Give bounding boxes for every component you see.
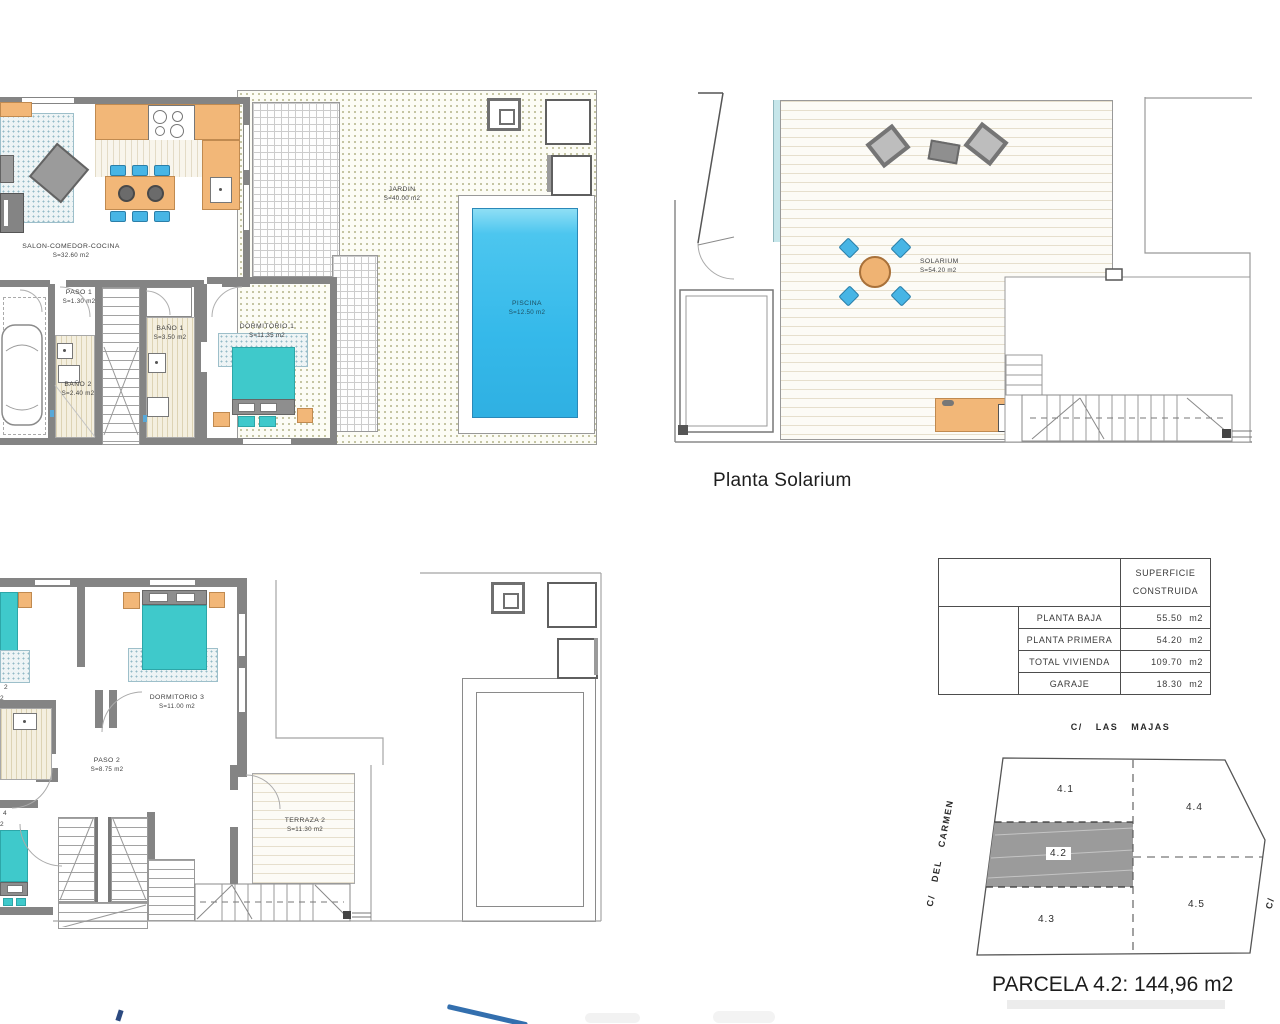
ground-floor-plan: SALON-COMEDOR-COCINA S=32.60 m2 PASO 1 S… <box>0 85 605 450</box>
parcel-number-42: 4.2 <box>1046 847 1071 860</box>
table-row: PLANTA BAJA 55.50 m2 <box>939 607 1211 629</box>
room-name: SALON-COMEDOR-COCINA <box>16 243 126 250</box>
watermark-fragment <box>585 1013 640 1023</box>
room-name: PISCINA <box>492 300 562 307</box>
room-area: S=8.75 m2 <box>72 766 142 773</box>
room-area: S=1.30 m2 <box>44 298 114 305</box>
row-value: 109.70 m2 <box>1121 651 1211 673</box>
room-name: DORMITORIO 1 <box>232 323 302 330</box>
room-area: S=11.35 m2 <box>232 332 302 339</box>
table-header-line2: CONSTRUIDA <box>1121 583 1210 600</box>
watermark-fragment <box>115 1009 123 1021</box>
watermark-logo-stroke <box>447 1004 528 1024</box>
room-area: S=11.30 m2 <box>270 826 340 833</box>
parcel-number-45: 4.5 <box>1188 899 1205 910</box>
cut-room-label: 2 <box>4 684 8 691</box>
row-label: TOTAL VIVIENDA <box>1019 651 1121 673</box>
table-empty-cell <box>939 559 1121 607</box>
solarium-plan-title: Planta Solarium <box>713 470 852 492</box>
room-name: DORMITORIO 3 <box>142 694 212 701</box>
cut-room-label: 4 <box>3 810 7 817</box>
watermark-fragment <box>713 1011 775 1023</box>
parcel-number-43: 4.3 <box>1038 914 1055 925</box>
room-label-paso1: PASO 1 S=1.30 m2 <box>44 289 114 305</box>
parcel-map-linework <box>910 720 1280 1020</box>
row-label: GARAJE <box>1019 673 1121 695</box>
row-label: PLANTA PRIMERA <box>1019 629 1121 651</box>
room-label-dormitorio3: DORMITORIO 3 S=11.00 m2 <box>142 694 212 710</box>
room-label-paso2: PASO 2 S=8.75 m2 <box>72 757 142 773</box>
room-name: JARDIN <box>367 186 437 193</box>
first-floor-linework <box>0 572 605 927</box>
first-floor-plan: 2 2 4 2 <box>0 572 605 927</box>
room-label-solarium: SOLARIUM S=54.20 m2 <box>920 258 990 274</box>
cut-room-label: 2 <box>0 821 4 828</box>
room-area: S=2.40 m2 <box>43 390 113 397</box>
room-label-bano2: BAÑO 2 S=2.40 m2 <box>43 381 113 397</box>
room-label-bano1: BAÑO 1 S=3.50 m2 <box>135 325 205 341</box>
room-area: S=11.00 m2 <box>142 703 212 710</box>
table-header-cell: SUPERFICIE CONSTRUIDA <box>1121 559 1211 607</box>
room-area: S=32.60 m2 <box>16 252 126 259</box>
architectural-plan-sheet: SALON-COMEDOR-COCINA S=32.60 m2 PASO 1 S… <box>0 0 1280 1024</box>
row-label: PLANTA BAJA <box>1019 607 1121 629</box>
room-name: PASO 2 <box>72 757 142 764</box>
surface-table: SUPERFICIE CONSTRUIDA PLANTA BAJA 55.50 … <box>938 558 1211 695</box>
parcel-number-44: 4.4 <box>1186 802 1203 813</box>
room-label-piscina: PISCINA S=12.50 m2 <box>492 300 562 316</box>
row-value: 55.50 m2 <box>1121 607 1211 629</box>
room-label-terraza2: TERRAZA 2 S=11.30 m2 <box>270 817 340 833</box>
room-name: TERRAZA 2 <box>270 817 340 824</box>
room-name: BAÑO 2 <box>43 381 113 388</box>
room-label-dormitorio1: DORMITORIO 1 S=11.35 m2 <box>232 323 302 339</box>
table-header-line1: SUPERFICIE <box>1121 565 1210 582</box>
room-name: PASO 1 <box>44 289 114 296</box>
room-label-jardin: JARDIN S=40.00 m2 <box>367 186 437 202</box>
row-value: 18.30 m2 <box>1121 673 1211 695</box>
room-area: S=3.50 m2 <box>135 334 205 341</box>
row-value: 54.20 m2 <box>1121 629 1211 651</box>
table-span-cell <box>939 607 1019 695</box>
room-area: S=54.20 m2 <box>920 267 990 274</box>
room-name: BAÑO 1 <box>135 325 205 332</box>
parcel-map: C/ LAS MAJAS C/ DEL CARMEN C/ 4.1 4.4 4.… <box>910 720 1280 1020</box>
room-area: S=12.50 m2 <box>492 309 562 316</box>
room-label-salon: SALON-COMEDOR-COCINA S=32.60 m2 <box>16 243 126 259</box>
room-area: S=40.00 m2 <box>367 195 437 202</box>
cut-room-label: 2 <box>0 695 4 702</box>
solarium-plan: SOLARIUM S=54.20 m2 <box>672 85 1257 450</box>
room-name: SOLARIUM <box>920 258 990 265</box>
parcel-number-41: 4.1 <box>1057 784 1074 795</box>
